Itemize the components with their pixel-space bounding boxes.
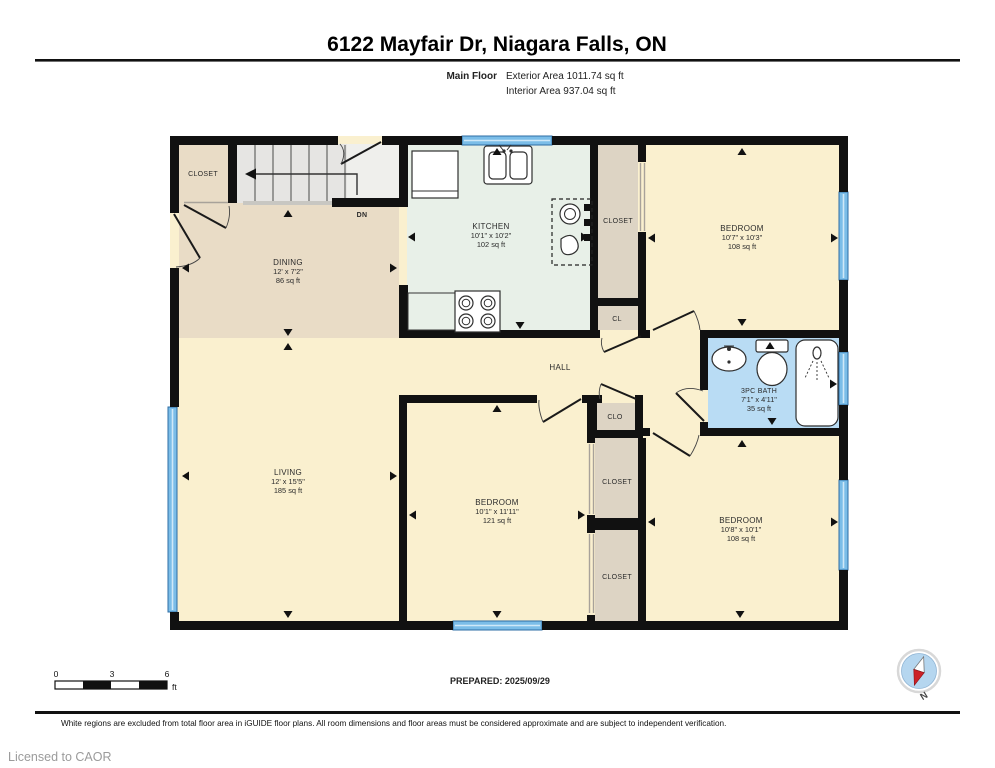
scale-bar: 0 3 6 ft: [54, 669, 178, 692]
exterior-area-label: Exterior Area 1011.74 sq ft: [506, 71, 624, 82]
room-label-cl: CL: [612, 316, 622, 323]
disclaimer-text: White regions are excluded from total fl…: [61, 719, 726, 728]
svg-text:108 sq ft: 108 sq ft: [727, 534, 755, 543]
svg-text:12' x 15'5": 12' x 15'5": [271, 477, 305, 486]
room-label-kitchen-closet: CLOSET: [603, 218, 633, 225]
room-label-closet-s1: CLOSET: [602, 479, 632, 486]
svg-text:7'1" x 4'11": 7'1" x 4'11": [741, 395, 777, 404]
svg-text:10'8" x 10'1": 10'8" x 10'1": [721, 525, 762, 534]
svg-text:108 sq ft: 108 sq ft: [728, 242, 756, 251]
room-label-entry-closet: CLOSET: [188, 171, 218, 178]
svg-text:10'1" x 11'11": 10'1" x 11'11": [475, 507, 519, 516]
page-title: 6122 Mayfair Dr, Niagara Falls, ON: [327, 33, 667, 56]
svg-text:BEDROOM: BEDROOM: [719, 516, 762, 525]
room-label-closet-s2: CLOSET: [602, 574, 632, 581]
svg-text:121 sq ft: 121 sq ft: [483, 516, 511, 525]
floor-label: Main Floor: [446, 71, 497, 82]
scale-tick-0: 0: [54, 669, 59, 679]
stair-edge: [243, 201, 335, 205]
room-label-dining: DINING 12' x 7'2" 86 sq ft: [273, 258, 303, 285]
kitchen-sink-icon: [484, 145, 532, 184]
floorplan-page: 6122 Mayfair Dr, Niagara Falls, ON Main …: [0, 0, 995, 768]
floor-fills: [170, 136, 848, 630]
svg-text:185 sq ft: 185 sq ft: [274, 486, 302, 495]
room-label-clo: CLO: [607, 414, 623, 421]
svg-text:12' x 7'2": 12' x 7'2": [273, 267, 303, 276]
scale-tick-3: 3: [110, 669, 115, 679]
interior-area-label: Interior Area 937.04 sq ft: [506, 86, 616, 97]
prepared-date: PREPARED: 2025/09/29: [450, 676, 550, 686]
svg-text:102 sq ft: 102 sq ft: [477, 240, 505, 249]
room-label-hall: HALL: [549, 363, 570, 372]
bath-sink-icon: [712, 346, 746, 371]
compass-north-label: N: [918, 690, 930, 703]
svg-text:86 sq ft: 86 sq ft: [276, 276, 300, 285]
compass-icon: N: [898, 650, 940, 703]
svg-text:BEDROOM: BEDROOM: [475, 498, 518, 507]
header-divider: [35, 59, 960, 62]
svg-text:KITCHEN: KITCHEN: [472, 222, 509, 231]
floorplan-svg: 6122 Mayfair Dr, Niagara Falls, ON Main …: [0, 0, 995, 768]
stairs-dn-label: DN: [357, 212, 368, 219]
license-text: Licensed to CAOR: [8, 750, 112, 764]
svg-text:10'7" x 10'3": 10'7" x 10'3": [722, 233, 763, 242]
room-label-living: LIVING 12' x 15'5" 185 sq ft: [271, 468, 305, 495]
svg-text:LIVING: LIVING: [274, 468, 302, 477]
scale-tick-6: 6: [165, 669, 170, 679]
svg-text:10'1" x 10'2": 10'1" x 10'2": [471, 231, 512, 240]
svg-text:3PC BATH: 3PC BATH: [741, 388, 777, 395]
scale-unit-label: ft: [172, 682, 177, 692]
footer-divider: [35, 711, 960, 714]
room-closet-s1-floor: [595, 438, 638, 518]
svg-text:BEDROOM: BEDROOM: [720, 224, 763, 233]
svg-text:35 sq ft: 35 sq ft: [747, 404, 771, 413]
svg-text:DINING: DINING: [273, 258, 303, 267]
